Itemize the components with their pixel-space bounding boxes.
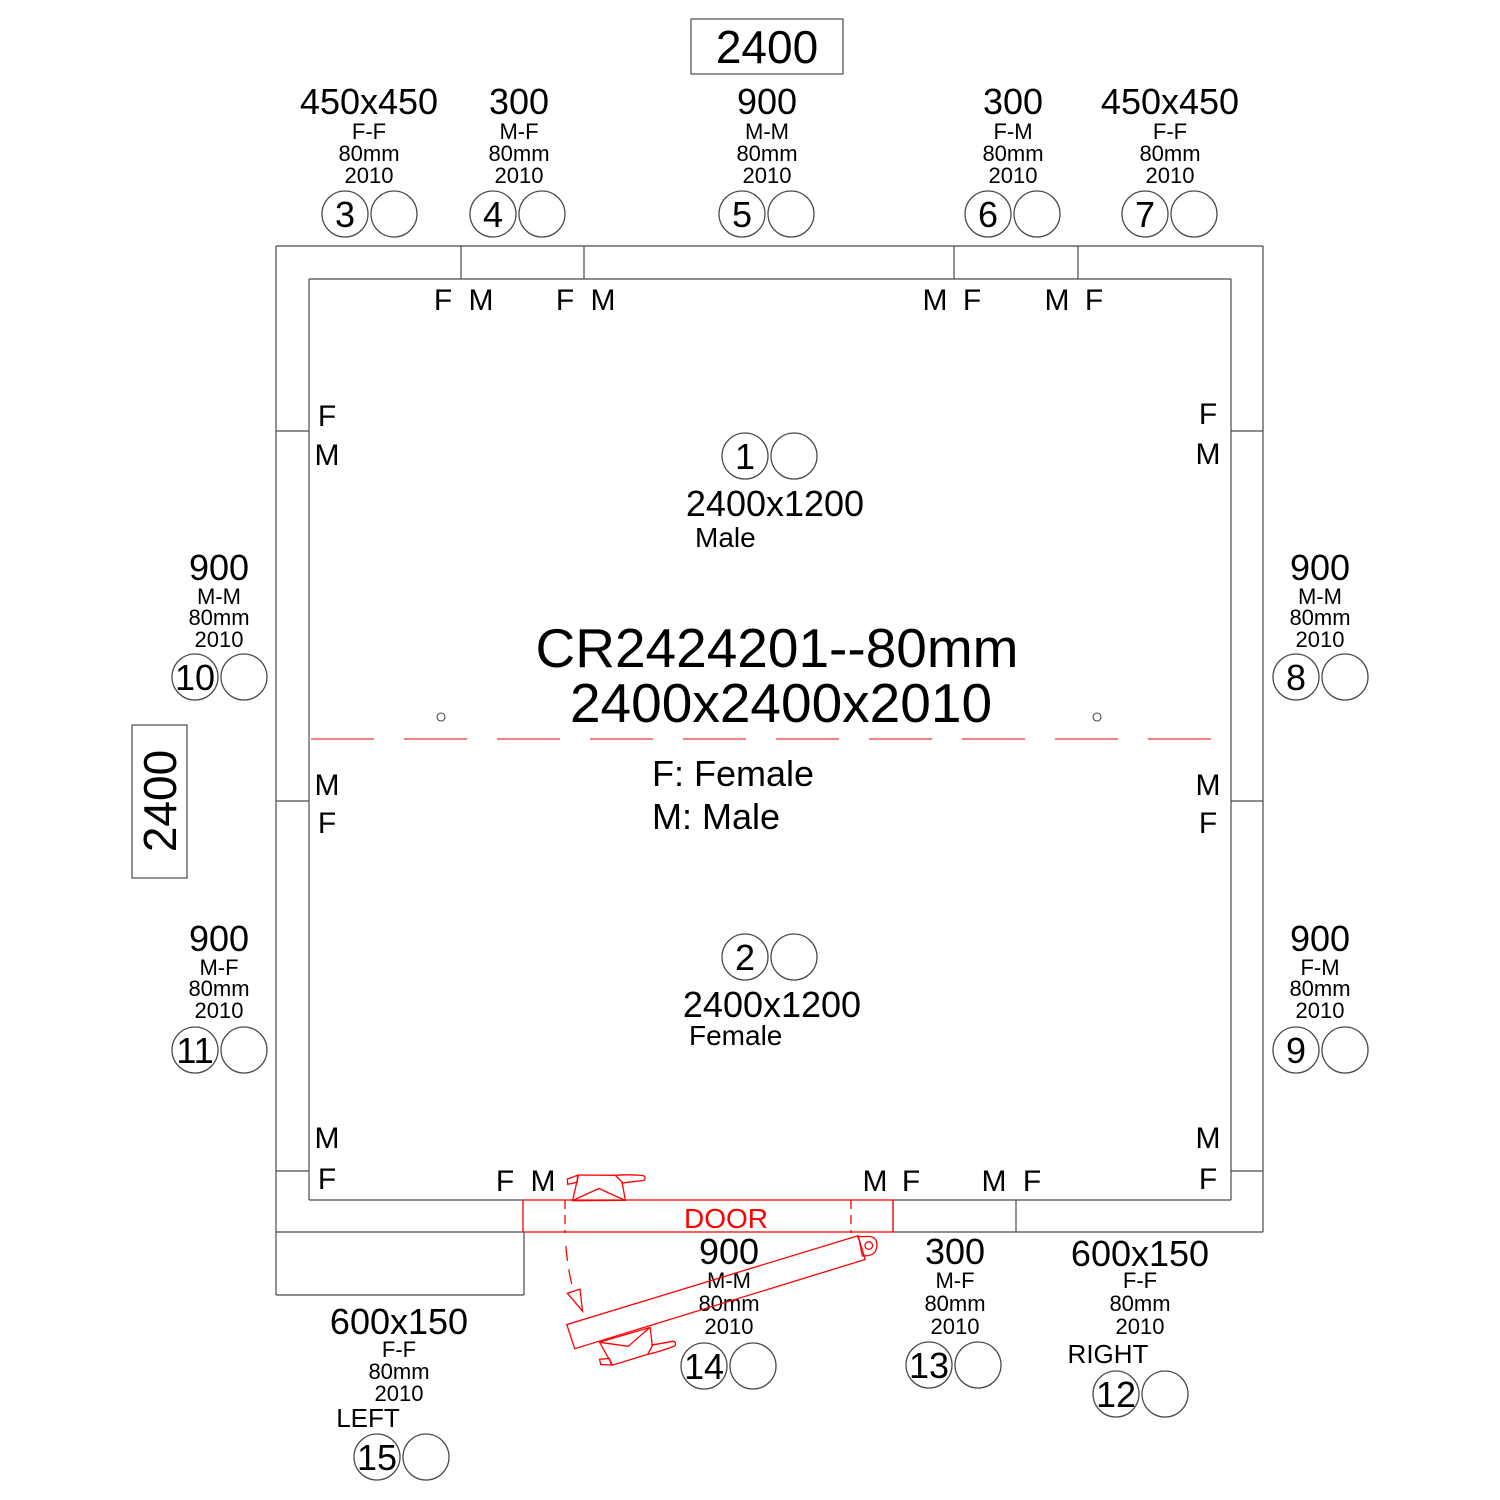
svg-text:F: F	[1199, 807, 1217, 840]
svg-text:M: M	[531, 1165, 556, 1198]
svg-text:LEFT: LEFT	[336, 1403, 400, 1433]
svg-text:1: 1	[735, 436, 755, 477]
svg-text:2010: 2010	[495, 163, 544, 188]
svg-text:6: 6	[978, 194, 998, 235]
svg-text:M: M	[1196, 769, 1221, 802]
svg-text:2010: 2010	[345, 163, 394, 188]
svg-text:Female: Female	[689, 1020, 782, 1051]
svg-text:2400: 2400	[716, 21, 818, 73]
svg-text:2: 2	[735, 937, 755, 978]
svg-text:F: F	[318, 1163, 336, 1196]
svg-text:450x450: 450x450	[1101, 81, 1239, 122]
svg-text:300: 300	[983, 81, 1043, 122]
svg-text:300: 300	[489, 81, 549, 122]
svg-text:2400x2400x2010: 2400x2400x2010	[570, 672, 992, 734]
svg-text:RIGHT: RIGHT	[1068, 1339, 1149, 1369]
svg-text:12: 12	[1096, 1374, 1136, 1415]
svg-text:M: M	[863, 1165, 888, 1198]
svg-text:F: F	[963, 284, 981, 317]
svg-text:13: 13	[909, 1345, 949, 1386]
svg-text:15: 15	[357, 1437, 397, 1478]
svg-text:F: F	[1199, 398, 1217, 431]
svg-text:M: M	[1196, 1122, 1221, 1155]
svg-text:900: 900	[189, 918, 249, 959]
svg-text:2400x1200: 2400x1200	[686, 483, 864, 524]
svg-text:80mm: 80mm	[1109, 1291, 1170, 1316]
svg-text:F: F	[1199, 1163, 1217, 1196]
svg-text:2400: 2400	[134, 750, 186, 852]
svg-text:2010: 2010	[1146, 163, 1195, 188]
svg-text:2010: 2010	[931, 1314, 980, 1339]
svg-text:2010: 2010	[195, 627, 244, 652]
svg-text:M: M	[923, 284, 948, 317]
svg-text:2010: 2010	[1296, 627, 1345, 652]
svg-text:900: 900	[1290, 918, 1350, 959]
svg-text:900: 900	[699, 1231, 759, 1272]
svg-text:8: 8	[1286, 657, 1306, 698]
svg-text:600x150: 600x150	[330, 1301, 468, 1342]
svg-text:F: Female: F: Female	[652, 753, 814, 794]
svg-text:9: 9	[1286, 1030, 1306, 1071]
svg-text:2010: 2010	[705, 1314, 754, 1339]
svg-text:5: 5	[732, 194, 752, 235]
svg-text:F: F	[1085, 284, 1103, 317]
svg-text:M: M	[591, 284, 616, 317]
svg-text:M-F: M-F	[935, 1268, 974, 1293]
svg-text:F: F	[318, 400, 336, 433]
svg-text:F: F	[318, 807, 336, 840]
svg-text:3: 3	[335, 194, 355, 235]
svg-text:900: 900	[1290, 547, 1350, 588]
svg-text:2010: 2010	[989, 163, 1038, 188]
svg-text:2010: 2010	[1296, 998, 1345, 1023]
svg-text:M: M	[315, 439, 340, 472]
svg-text:7: 7	[1135, 194, 1155, 235]
svg-text:F: F	[556, 284, 574, 317]
svg-text:M: Male: M: Male	[652, 796, 780, 837]
svg-text:11: 11	[176, 1030, 213, 1071]
svg-text:M: M	[315, 1122, 340, 1155]
svg-text:M: M	[982, 1165, 1007, 1198]
svg-text:2010: 2010	[743, 163, 792, 188]
svg-text:80mm: 80mm	[924, 1291, 985, 1316]
svg-text:CR2424201--80mm: CR2424201--80mm	[536, 617, 1019, 679]
svg-text:2010: 2010	[195, 998, 244, 1023]
svg-text:M: M	[469, 284, 494, 317]
svg-text:14: 14	[684, 1346, 724, 1387]
svg-text:M: M	[315, 769, 340, 802]
svg-text:300: 300	[925, 1231, 985, 1272]
svg-text:2400x1200: 2400x1200	[683, 984, 861, 1025]
svg-text:450x450: 450x450	[300, 81, 438, 122]
svg-text:2010: 2010	[1116, 1314, 1165, 1339]
svg-text:F: F	[902, 1165, 920, 1198]
svg-text:F: F	[496, 1165, 514, 1198]
svg-text:DOOR: DOOR	[684, 1203, 768, 1234]
svg-text:M-M: M-M	[707, 1268, 751, 1293]
svg-text:F: F	[434, 284, 452, 317]
svg-text:F: F	[1023, 1165, 1041, 1198]
svg-text:M: M	[1045, 284, 1070, 317]
svg-text:M: M	[1196, 438, 1221, 471]
svg-text:900: 900	[737, 81, 797, 122]
svg-text:10: 10	[175, 657, 215, 698]
svg-text:4: 4	[483, 194, 503, 235]
svg-text:900: 900	[189, 547, 249, 588]
svg-text:Male: Male	[695, 522, 756, 553]
svg-text:F-F: F-F	[1123, 1268, 1157, 1293]
